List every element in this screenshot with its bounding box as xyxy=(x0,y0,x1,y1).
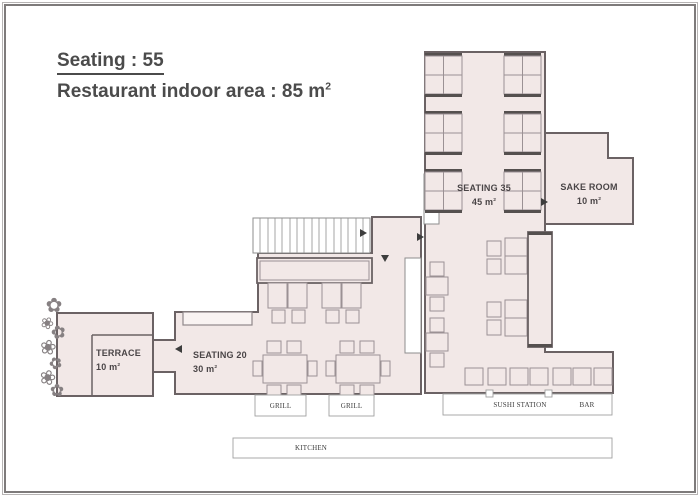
booth-bench xyxy=(504,152,541,155)
chair xyxy=(340,341,354,353)
table xyxy=(426,277,448,295)
chair xyxy=(326,310,339,323)
wall-shelf xyxy=(183,312,252,325)
indoor-area-title: Restaurant indoor area : 85 m2 xyxy=(57,81,331,103)
counter-cap xyxy=(528,232,552,235)
sake-room-area: 10 m2 xyxy=(545,194,633,208)
stool xyxy=(594,368,612,385)
chair xyxy=(430,297,444,311)
counter-cap xyxy=(528,344,552,347)
booth-bench xyxy=(504,210,541,213)
bar-label: BAR xyxy=(563,394,611,415)
chair xyxy=(381,361,390,376)
staircase xyxy=(253,218,370,253)
chair xyxy=(487,302,501,317)
chair xyxy=(430,318,444,332)
chair xyxy=(360,341,374,353)
booth-bench xyxy=(425,210,462,213)
terrace-area: 10 m2 xyxy=(96,360,141,374)
chair xyxy=(430,353,444,367)
kitchen-label: KITCHEN xyxy=(283,438,339,458)
grill-left-label: GRILL xyxy=(255,395,306,416)
chair xyxy=(430,262,444,276)
table xyxy=(505,238,527,256)
table xyxy=(505,318,527,336)
plant-flower-icon: ✿ xyxy=(50,381,64,401)
chair xyxy=(253,361,262,376)
chair xyxy=(487,259,501,274)
terrace-name: TERRACE xyxy=(96,348,141,360)
stool xyxy=(530,368,548,385)
seating20-label: SEATING 20 30 m2 xyxy=(193,350,247,375)
chair xyxy=(346,310,359,323)
booth-bench xyxy=(425,94,462,97)
sake-room-label: SAKE ROOM 10 m2 xyxy=(545,182,633,207)
stool xyxy=(488,368,506,385)
chair xyxy=(292,310,305,323)
stair-void xyxy=(405,258,421,353)
sake-room-floor xyxy=(545,133,633,224)
stool xyxy=(553,368,571,385)
table xyxy=(322,283,341,308)
seating35-area: 45 m2 xyxy=(425,195,543,209)
stool xyxy=(510,368,528,385)
table-four-top xyxy=(336,355,380,383)
terrace-label: TERRACE 10 m2 xyxy=(96,348,141,373)
table xyxy=(288,283,307,308)
seating35-label: SEATING 35 45 m2 xyxy=(425,183,543,208)
sake-room-name: SAKE ROOM xyxy=(545,182,633,194)
table xyxy=(268,283,287,308)
table-four-top xyxy=(263,355,307,383)
table xyxy=(505,256,527,274)
sushi-station-label: SUSHI STATION xyxy=(468,394,572,415)
booth-bench xyxy=(504,94,541,97)
seating-total-text: Seating : 55 xyxy=(57,50,164,75)
sushi-counter xyxy=(528,232,552,347)
table xyxy=(505,300,527,318)
chair xyxy=(287,341,301,353)
seating-total-title: Seating : 55 xyxy=(57,50,164,75)
grill-counter xyxy=(257,258,372,283)
chair xyxy=(487,320,501,335)
chair xyxy=(326,361,335,376)
restaurant-floor-plan: ✿❀✿❀✿❀✿ Seating : 55 Restaurant indoor a… xyxy=(0,0,700,497)
seating20-area: 30 m2 xyxy=(193,362,247,376)
table xyxy=(342,283,361,308)
seating20-name: SEATING 20 xyxy=(193,350,247,362)
chair xyxy=(487,241,501,256)
grill-right-label: GRILL xyxy=(329,395,374,416)
stool xyxy=(573,368,591,385)
chair xyxy=(308,361,317,376)
stool xyxy=(465,368,483,385)
booth-bench xyxy=(425,152,462,155)
table xyxy=(426,333,448,351)
seating35-name: SEATING 35 xyxy=(425,183,543,195)
chair xyxy=(267,341,281,353)
chair xyxy=(272,310,285,323)
